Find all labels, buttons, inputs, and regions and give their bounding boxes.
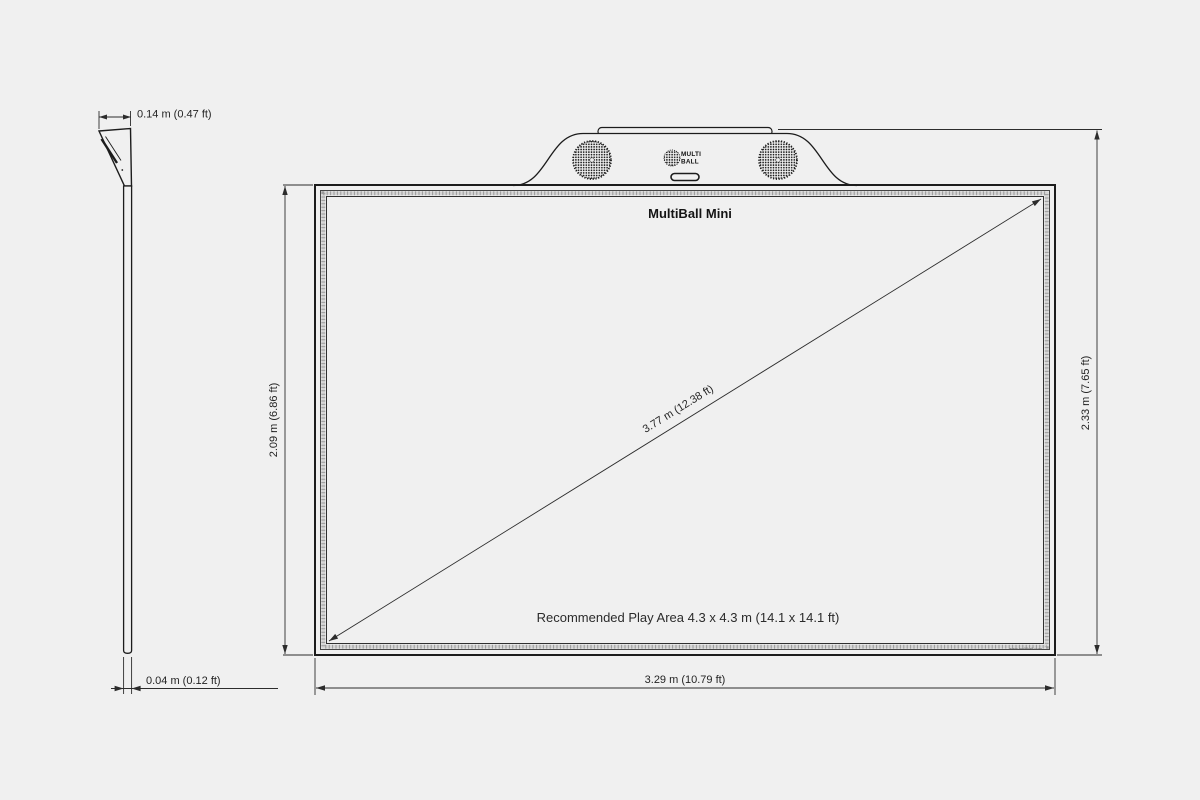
arrowhead bbox=[316, 685, 325, 690]
total-height-dimension-label: 2.33 m (7.65 ft) bbox=[1080, 356, 1092, 431]
arrowhead bbox=[115, 686, 124, 691]
side-view: 0.14 m (0.47 ft) 0.04 m (0.12 ft) bbox=[99, 109, 278, 695]
width-dimension-label: 3.29 m (10.79 ft) bbox=[645, 674, 726, 686]
projector-head bbox=[99, 129, 132, 188]
side-thickness-dimension-label: 0.04 m (0.12 ft) bbox=[146, 675, 221, 687]
total-height-dimension: 2.33 m (7.65 ft) bbox=[778, 130, 1102, 656]
connector-slot bbox=[671, 174, 699, 181]
play-area-note: Recommended Play Area 4.3 x 4.3 m (14.1 … bbox=[537, 610, 840, 625]
side-depth-dimension: 0.14 m (0.47 ft) bbox=[99, 109, 212, 130]
arrowhead bbox=[123, 115, 131, 120]
diagonal-dimension-label: 3.77 m (12.38 ft) bbox=[641, 383, 716, 436]
width-dimension: 3.29 m (10.79 ft) bbox=[315, 658, 1055, 695]
speaker-center bbox=[590, 158, 594, 162]
panel-side-profile bbox=[124, 186, 132, 653]
arrowhead bbox=[99, 115, 107, 120]
drawing-svg: 0.14 m (0.47 ft) 0.04 m (0.12 ft) bbox=[0, 0, 1200, 800]
arrowhead bbox=[1094, 645, 1099, 654]
speaker-module: MULTI BALL bbox=[513, 128, 857, 186]
arrowhead bbox=[282, 645, 287, 654]
arrowhead bbox=[1045, 685, 1054, 690]
model-name-label: MultiBall Mini bbox=[648, 206, 732, 221]
logo-text-bottom: BALL bbox=[681, 159, 699, 166]
arrowhead bbox=[1032, 199, 1041, 206]
side-depth-dimension-label: 0.14 m (0.47 ft) bbox=[137, 109, 212, 121]
screen-height-dimension-label: 2.09 m (6.86 ft) bbox=[268, 383, 280, 458]
speaker-center bbox=[776, 158, 780, 162]
arrowhead bbox=[329, 634, 338, 641]
logo-text-top: MULTI bbox=[681, 151, 701, 158]
screen-height-dimension: 2.09 m (6.86 ft) bbox=[268, 185, 313, 655]
left-speaker bbox=[573, 141, 611, 179]
side-thickness-dimension: 0.04 m (0.12 ft) bbox=[111, 657, 278, 694]
diagonal-line bbox=[329, 199, 1041, 641]
right-speaker bbox=[759, 141, 797, 179]
front-view: MULTI BALL MultiBall Mini 3.77 m (12.38 … bbox=[268, 128, 1102, 696]
footer-url: www.multiball.com bbox=[1009, 646, 1043, 651]
multiball-logo: MULTI BALL bbox=[664, 150, 701, 166]
arrowhead bbox=[282, 186, 287, 195]
arrowhead bbox=[132, 686, 141, 691]
diagonal-dimension: 3.77 m (12.38 ft) bbox=[329, 199, 1041, 641]
head-outline bbox=[99, 129, 132, 187]
detail-dot bbox=[121, 169, 123, 171]
technical-drawing-page: 0.14 m (0.47 ft) 0.04 m (0.12 ft) bbox=[0, 0, 1200, 800]
arrowhead bbox=[1094, 131, 1099, 140]
